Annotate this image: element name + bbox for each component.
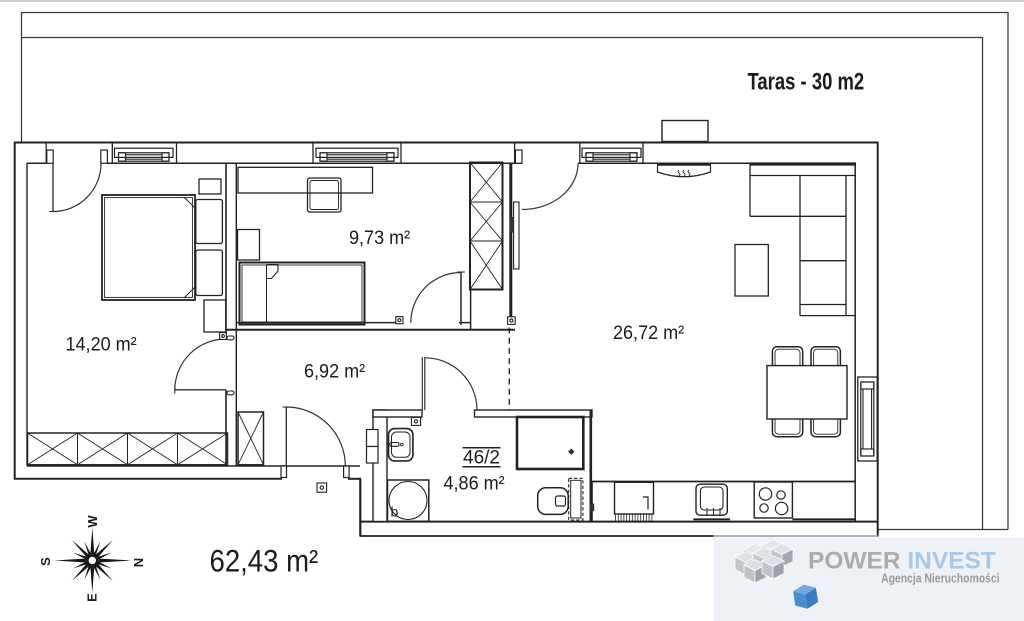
svg-text:9,73 m²: 9,73 m²: [349, 226, 410, 248]
svg-text:14,20 m²: 14,20 m²: [66, 333, 137, 355]
svg-text:4,86 m²: 4,86 m²: [444, 472, 505, 494]
svg-text:62,43 m²: 62,43 m²: [210, 544, 319, 579]
svg-text:Agencja Nieruchomości: Agencja Nieruchomości: [881, 571, 999, 585]
svg-text:POWER INVEST: POWER INVEST: [808, 548, 996, 575]
svg-text:Taras - 30 m2: Taras - 30 m2: [748, 68, 865, 95]
svg-text:6,92 m²: 6,92 m²: [304, 360, 365, 382]
svg-text:46/2: 46/2: [463, 448, 500, 469]
svg-text:W: W: [85, 515, 100, 528]
svg-text:E: E: [84, 593, 99, 602]
svg-text:S: S: [38, 557, 53, 566]
svg-text:N: N: [131, 558, 146, 567]
svg-text:b: b: [391, 504, 399, 520]
svg-text:26,72 m²: 26,72 m²: [613, 322, 684, 344]
